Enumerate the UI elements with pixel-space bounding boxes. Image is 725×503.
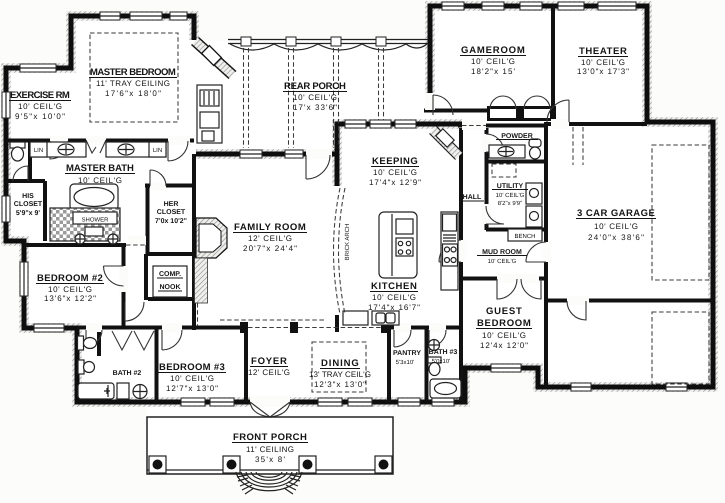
svg-text:3 CAR GARAGE: 3 CAR GARAGE [577,208,655,219]
svg-text:CLOSET: CLOSET [157,209,186,216]
svg-text:10' CEIL'G: 10' CEIL'G [373,168,417,177]
svg-text:NOOK: NOOK [160,284,181,291]
svg-text:FOYER: FOYER [251,356,287,367]
svg-text:COMP.: COMP. [159,271,181,278]
svg-text:7'0x 10'2": 7'0x 10'2" [155,218,187,225]
svg-text:MASTER BATH: MASTER BATH [66,163,134,174]
svg-text:10' CEIL'G: 10' CEIL'G [471,57,515,66]
svg-text:24'0"x 38'6": 24'0"x 38'6" [588,233,644,242]
svg-text:10' CEIL'G: 10' CEIL'G [18,102,62,111]
svg-text:KEEPING: KEEPING [372,156,418,167]
svg-text:10' CEIL'G: 10' CEIL'G [372,293,416,302]
svg-text:HER: HER [164,201,179,208]
svg-text:12' CEIL'G: 12' CEIL'G [248,368,290,377]
svg-text:REAR PORCH: REAR PORCH [284,81,346,92]
svg-text:BRICK ARCH: BRICK ARCH [344,224,351,261]
svg-text:FRONT PORCH: FRONT PORCH [233,432,307,443]
svg-text:BATH #2: BATH #2 [113,370,142,377]
svg-text:LIN: LIN [34,147,43,154]
svg-text:17'x 33'6": 17'x 33'6" [293,103,337,112]
svg-text:BEDROOM #3: BEDROOM #3 [159,362,225,373]
svg-text:10' CEIL'G: 10' CEIL'G [594,222,638,231]
svg-text:KITCHEN: KITCHEN [371,281,417,292]
svg-text:13' TRAY CEIL'G: 13' TRAY CEIL'G [309,370,371,379]
svg-text:10' CEIL'G: 10' CEIL'G [482,331,526,340]
svg-text:HIS: HIS [22,193,34,200]
svg-text:HALL: HALL [463,194,482,201]
svg-text:DINING: DINING [321,358,359,369]
svg-text:10' CEIL'G: 10' CEIL'G [496,192,525,199]
svg-text:UTILITY: UTILITY [497,183,524,190]
svg-text:BATH #3: BATH #3 [429,349,458,356]
svg-text:10' CEIL'G: 10' CEIL'G [78,176,122,185]
svg-text:10' CEIL'G: 10' CEIL'G [48,285,92,294]
svg-text:13'6"x 12'2": 13'6"x 12'2" [44,294,96,303]
svg-text:POWDER: POWDER [501,133,533,140]
svg-text:5'3x10': 5'3x10' [396,359,415,366]
svg-text:CLOSET: CLOSET [14,201,43,208]
svg-text:12'4x 12'0": 12'4x 12'0" [480,341,528,350]
svg-text:PANTRY: PANTRY [393,350,421,357]
svg-text:BENCH: BENCH [514,233,535,240]
svg-text:THEATER: THEATER [579,46,627,57]
svg-text:11' TRAY CEILING: 11' TRAY CEILING [96,79,170,88]
svg-text:MUD ROOM: MUD ROOM [482,249,522,256]
svg-text:18'2"x 15': 18'2"x 15' [471,67,515,76]
svg-text:5'9"x 9': 5'9"x 9' [16,210,41,217]
svg-text:SHOWER: SHOWER [82,217,110,224]
svg-text:10' CEIL'G: 10' CEIL'G [170,374,214,383]
svg-text:10' CEIL'G: 10' CEIL'G [581,58,625,67]
svg-text:BEDROOM: BEDROOM [477,318,531,329]
svg-text:17'6"x 18'0": 17'6"x 18'0" [105,89,161,98]
svg-text:13'0"x 17'3": 13'0"x 17'3" [577,67,629,76]
svg-text:8'2"x 9'9": 8'2"x 9'9" [498,200,523,207]
svg-text:17'4"x 12'9": 17'4"x 12'9" [369,178,421,187]
svg-text:12'3"x 13'0": 12'3"x 13'0" [314,380,366,389]
svg-text:10' CEIL'G: 10' CEIL'G [293,93,337,102]
svg-text:10' CEIL'G: 10' CEIL'G [488,258,517,265]
svg-text:11' CEILING: 11' CEILING [246,445,294,454]
svg-text:EXERCISE RM: EXERCISE RM [10,90,70,101]
svg-text:12' CEIL'G: 12' CEIL'G [248,234,292,243]
svg-text:GAMEROOM: GAMEROOM [461,45,525,56]
svg-text:20'7"x 24'4": 20'7"x 24'4" [243,244,297,253]
svg-text:LIN: LIN [153,147,162,154]
svg-text:5'0x10': 5'0x10' [432,358,451,365]
svg-text:12'7"x 13'0": 12'7"x 13'0" [166,384,218,393]
svg-text:17'4"x 16'7": 17'4"x 16'7" [368,303,420,312]
svg-text:FAMILY ROOM: FAMILY ROOM [234,222,306,233]
svg-text:MASTER BEDROOM: MASTER BEDROOM [90,67,176,78]
svg-text:BEDROOM #2: BEDROOM #2 [37,273,103,284]
svg-text:GUEST: GUEST [486,306,522,317]
